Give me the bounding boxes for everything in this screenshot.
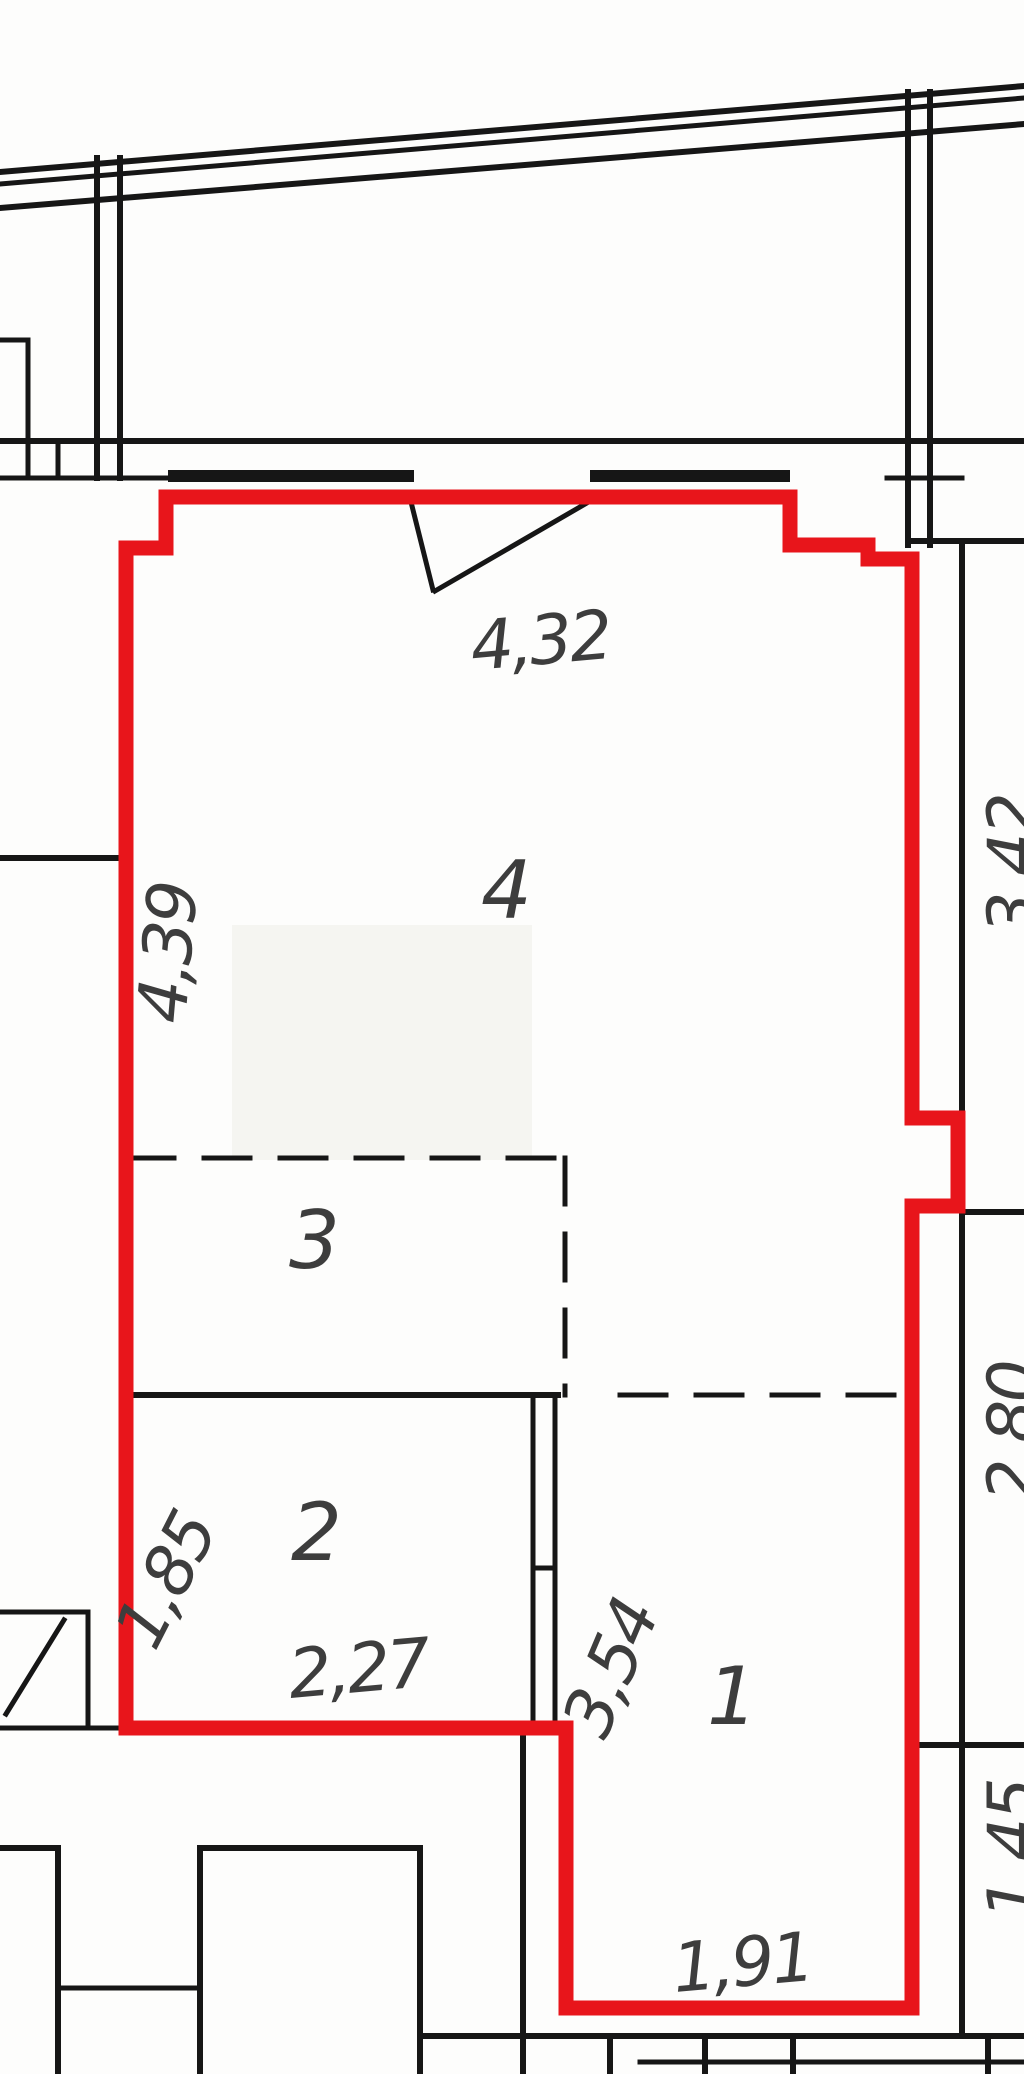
dimension-left-height: 4,39 bbox=[123, 880, 214, 1026]
window-bar-right bbox=[590, 470, 790, 482]
unit-boundary-outline bbox=[126, 497, 958, 2008]
railing-post-left bbox=[97, 158, 120, 478]
exterior-wall-top bbox=[0, 340, 1024, 541]
dimension-right-bottom: 1,45 bbox=[974, 1780, 1024, 1919]
room-label-2: 2 bbox=[291, 1486, 339, 1579]
dimension-right-middle: 2,80 bbox=[974, 1362, 1024, 1501]
dimension-bottom-width: 1,91 bbox=[669, 1918, 815, 2009]
watermark-patch bbox=[232, 925, 532, 1160]
floor-plan-drawing: 4,32 4,39 3,42 2,80 1,45 1,85 2,27 3,54 … bbox=[0, 0, 1024, 2074]
door-swing bbox=[412, 500, 592, 591]
dimension-top-width: 4,32 bbox=[467, 596, 613, 687]
room-label-1: 1 bbox=[707, 1650, 755, 1743]
dimension-room1-left: 3,54 bbox=[548, 1589, 675, 1748]
balcony-railing bbox=[0, 86, 1024, 208]
window-bar-left bbox=[168, 470, 414, 482]
floor-plan-canvas: 4,32 4,39 3,42 2,80 1,45 1,85 2,27 3,54 … bbox=[0, 0, 1024, 2074]
lower-structures bbox=[0, 1728, 1024, 2074]
room-label-3: 3 bbox=[289, 1194, 337, 1287]
window-bars bbox=[168, 470, 790, 482]
dimension-room2-bottom: 2,27 bbox=[285, 1624, 433, 1715]
dimension-right-top: 3,42 bbox=[974, 795, 1024, 934]
room-label-4: 4 bbox=[481, 844, 529, 937]
dashed-partition bbox=[128, 1158, 905, 1395]
